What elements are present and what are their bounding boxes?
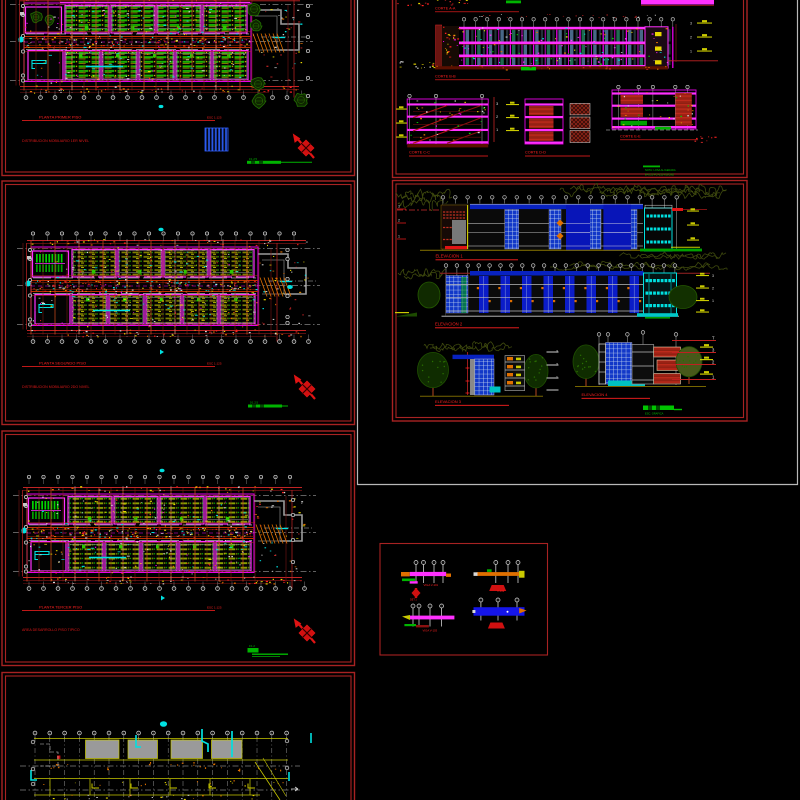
- svg-text:V-102: V-102: [497, 589, 505, 593]
- svg-text:2: 2: [398, 219, 400, 223]
- svg-text:PLANTA SEGUNDO PISO: PLANTA SEGUNDO PISO: [39, 361, 86, 366]
- svg-text:0 1 2: 0 1 2: [249, 644, 255, 648]
- svg-text:DISTRIBUCION MOBILIARIO 1ER NI: DISTRIBUCION MOBILIARIO 1ER NIVEL: [22, 139, 89, 143]
- svg-text:VIGA V-103: VIGA V-103: [423, 629, 438, 633]
- svg-text:CORTE E-E: CORTE E-E: [620, 135, 641, 139]
- svg-text:0 1 2 5: 0 1 2 5: [250, 401, 258, 405]
- svg-text:VIGA V-101: VIGA V-101: [424, 583, 439, 587]
- svg-text:1: 1: [556, 375, 558, 379]
- svg-text:ESC 1:125: ESC 1:125: [207, 116, 222, 120]
- svg-text:ESC. GRAFICA: ESC. GRAFICA: [645, 412, 664, 416]
- svg-text:0 1 2 5: 0 1 2 5: [249, 157, 257, 161]
- svg-text:3: 3: [398, 205, 400, 209]
- svg-text:AREA DESARROLLO PISO TIPICO: AREA DESARROLLO PISO TIPICO: [22, 628, 80, 632]
- svg-text:DET 1: DET 1: [410, 599, 417, 602]
- svg-text:PLANTA PRIMER PISO: PLANTA PRIMER PISO: [39, 115, 81, 120]
- svg-text:2: 2: [690, 36, 692, 40]
- svg-text:CORTE A-A: CORTE A-A: [435, 7, 456, 11]
- svg-text:1: 1: [690, 50, 692, 54]
- svg-text:PLANTA TERCER PISO: PLANTA TERCER PISO: [39, 605, 82, 610]
- svg-text:ESC 1:125: ESC 1:125: [207, 606, 222, 610]
- svg-text:1: 1: [398, 235, 400, 239]
- svg-text:2: 2: [712, 287, 714, 291]
- svg-text:3: 3: [690, 22, 692, 26]
- svg-text:3: 3: [712, 274, 714, 278]
- svg-text:DISTRIBUCION MOBILIARIO 2DO NI: DISTRIBUCION MOBILIARIO 2DO NIVEL: [22, 385, 90, 389]
- svg-text:ELEVACION 3: ELEVACION 3: [435, 399, 462, 404]
- svg-text:CORTE C-C: CORTE C-C: [409, 151, 430, 155]
- svg-text:CORTE D-D: CORTE D-D: [525, 151, 546, 155]
- svg-text:NOTA: LOSA ALIGERADA: NOTA: LOSA ALIGERADA: [645, 168, 676, 172]
- svg-text:3: 3: [556, 349, 558, 353]
- svg-text:CORTE B-B: CORTE B-B: [435, 75, 456, 79]
- svg-text:ELEVACION 1: ELEVACION 1: [436, 254, 464, 259]
- svg-text:ESC 1:125: ESC 1:125: [207, 362, 222, 366]
- svg-text:T: T: [712, 336, 715, 341]
- svg-text:1: 1: [712, 299, 714, 303]
- svg-text:ELEVACION 2: ELEVACION 2: [435, 322, 463, 327]
- svg-text:ELEVACION 4: ELEVACION 4: [582, 392, 609, 397]
- svg-text:2: 2: [556, 362, 558, 366]
- svg-text:E=0.20 FC=210 KG/CM2: E=0.20 FC=210 KG/CM2: [645, 173, 675, 177]
